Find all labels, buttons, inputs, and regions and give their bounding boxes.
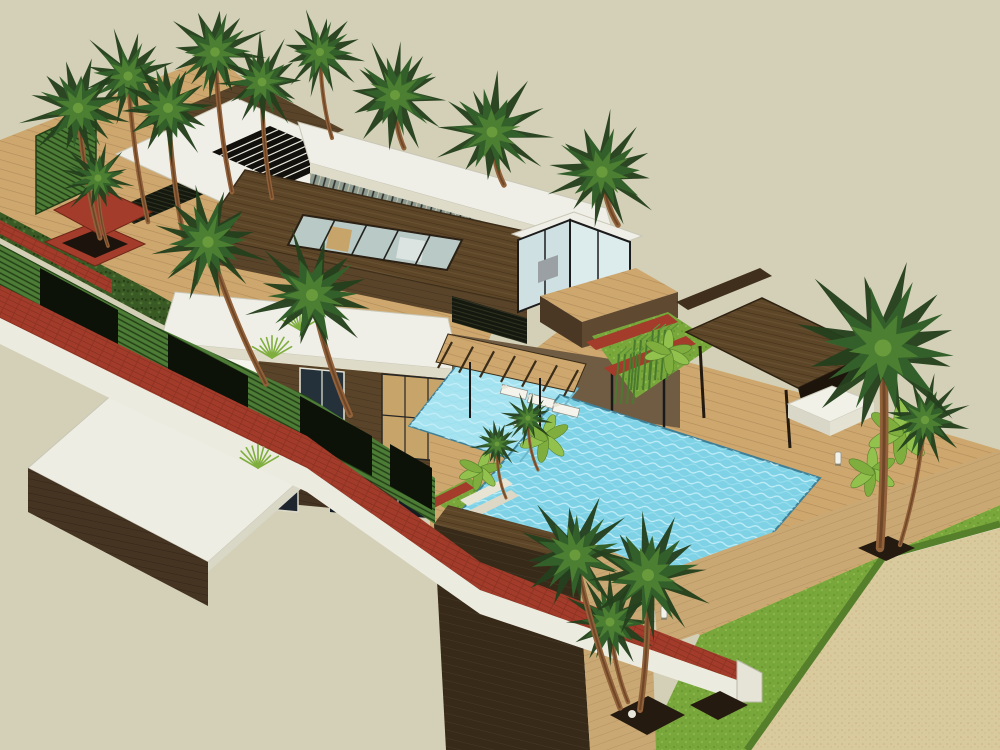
palm-crown	[210, 47, 220, 57]
palm-crown	[306, 289, 318, 301]
lounger-backrest	[501, 386, 507, 388]
palm-crown	[921, 416, 929, 424]
palm-crown	[875, 340, 892, 357]
palm-crown	[73, 103, 83, 113]
lounger-backrest	[553, 404, 559, 406]
palm-crown	[94, 174, 101, 181]
palm-crown	[316, 48, 324, 56]
palm-crown	[495, 442, 500, 447]
palm-crown	[258, 78, 267, 87]
palm-crown	[163, 103, 173, 113]
palm-crown	[390, 90, 400, 100]
palm-crown	[487, 127, 498, 138]
palm-crown	[123, 71, 132, 80]
render-canvas	[0, 0, 1000, 750]
palm-crown	[596, 166, 607, 177]
palm-crown	[570, 550, 581, 561]
palm-base-ring	[628, 710, 636, 718]
lounger-backrest	[528, 395, 534, 397]
3d-model-viewport	[0, 0, 1000, 750]
palm-crown	[642, 569, 654, 581]
palm-crown	[606, 618, 615, 627]
sconce-body	[835, 452, 841, 464]
atrium-interior-glass	[396, 237, 425, 262]
wall-sconce	[835, 452, 841, 465]
palm-crown	[202, 236, 213, 247]
palm-crown	[525, 415, 530, 420]
